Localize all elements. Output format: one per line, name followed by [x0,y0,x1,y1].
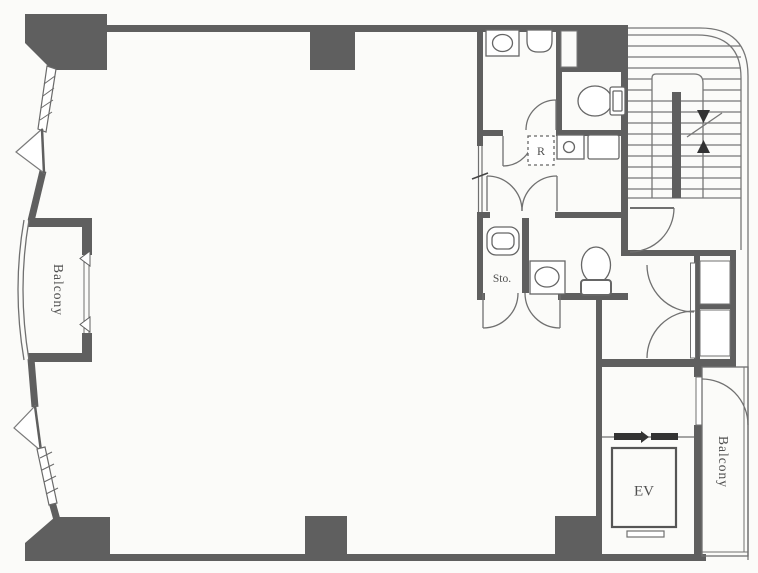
door-laundry [526,100,556,130]
ev-door-bar-right [651,433,678,440]
wall-bath-south-a [477,293,485,300]
toilet-upper-icon [578,86,625,116]
pillar-bottom-center [305,516,347,556]
kitchen-counter-icon [588,135,619,159]
sliding-door-kitchen [472,146,488,212]
pillar-top-center [310,31,355,70]
kitchen-sink-drain-icon [564,142,575,153]
entrance-double-door [647,263,696,358]
stair-arrow-down-icon [697,110,710,123]
elevator-door [627,531,664,537]
wall-east-unit [621,25,628,252]
wall-kitchen-south-a [477,212,490,218]
pillar-bottom-right [555,516,597,556]
balcony-right: Balcony [702,367,748,556]
meter-box-upper [700,261,730,304]
floor-plan: Balcony [0,0,758,573]
balcony-left-rail-outer [23,220,29,360]
ev-door-bar-left [614,433,641,440]
wall-niche [561,31,577,67]
balcony-left: Balcony [18,220,90,360]
wall-storage-divider [522,218,529,293]
door-landing [630,208,674,252]
elevator-label: EV [634,483,654,499]
door-balcony-right [696,377,748,425]
wall-cluster-west-lower [477,212,483,300]
casement-window-lower [14,406,41,451]
balcony-left-label: Balcony [51,264,66,316]
wall-balcony-left-east-a [82,218,92,255]
wall-ev-east-lower [694,425,702,554]
meter-box-lower [700,310,730,356]
wall-ev-east-upper [694,367,702,377]
wall-kitchen-south-b [555,212,621,218]
double-door-lower [483,293,560,328]
floor-plan-drawing: Balcony [0,0,758,573]
balcony-right-label: Balcony [716,436,731,488]
storage-label: Sto. [493,273,511,285]
wall-bottom [108,554,706,561]
elevator: EV [602,431,694,537]
wash-basin-icon [527,30,552,52]
wall-main-room-east [596,300,602,554]
stair-center-wall [672,92,681,198]
washing-machine-drum-icon [493,35,513,52]
bathtub-inner-icon [492,233,514,249]
refrigerator-label: R [537,144,545,158]
wall-hall-south [597,359,736,367]
toilet-lower-icon [581,247,611,295]
casement-window-upper [16,129,44,173]
window-band-upper [38,66,56,132]
pillar-bottom-left [25,517,110,561]
stair-arrow-up-icon [697,140,710,153]
wall-kitchen-north-a [483,130,503,136]
vanity-bowl-icon [535,267,559,287]
wall-balcony-left-east-b [82,333,92,362]
stairwell-inner-wall [625,35,741,250]
double-door-upper [487,176,557,211]
pillar-top-left [25,14,107,70]
wall-cluster-west-upper [477,31,483,146]
window-band-lower [37,447,58,505]
sliding-window-marker-lower [80,317,90,332]
ev-door-marker-icon [641,431,649,443]
